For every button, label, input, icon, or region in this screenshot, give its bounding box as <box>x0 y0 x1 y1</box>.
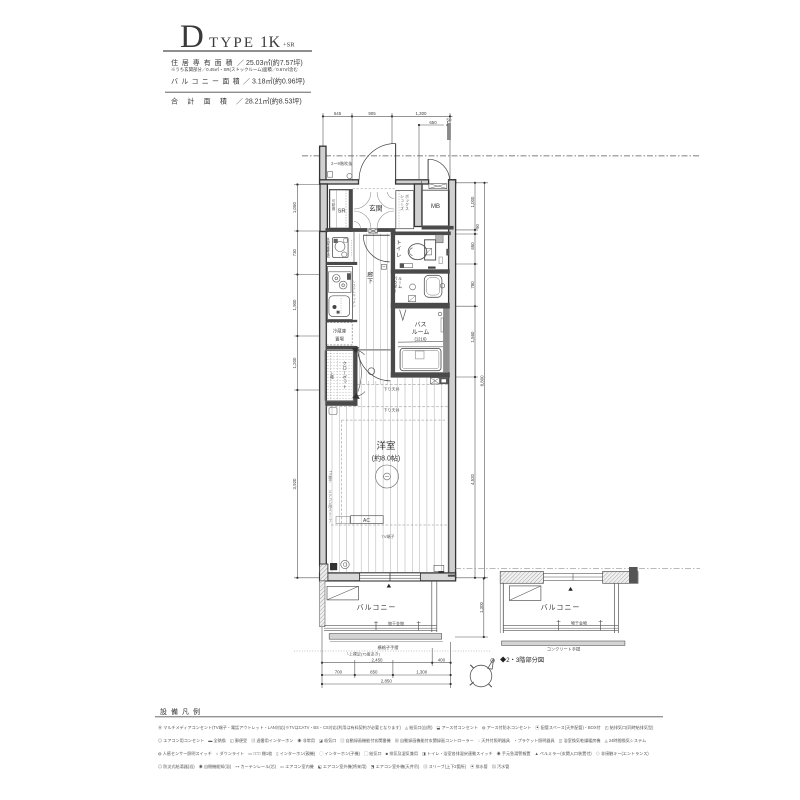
svg-text:洗濯機置場: 洗濯機置場 <box>326 237 331 259</box>
svg-text:TV端子: TV端子 <box>381 533 394 539</box>
svg-text:+SR: +SR <box>283 42 295 49</box>
svg-text:(約8.0帖): (約8.0帖) <box>372 454 400 463</box>
svg-text:730: 730 <box>292 248 297 256</box>
svg-text:8,800: 8,800 <box>480 375 485 387</box>
svg-text:650: 650 <box>429 120 437 125</box>
svg-text:MB: MB <box>431 204 440 210</box>
svg-text:1,000: 1,000 <box>470 196 475 208</box>
svg-text:4,520: 4,520 <box>470 473 475 485</box>
svg-text:トイレ: トイレ <box>395 240 402 259</box>
svg-text:780: 780 <box>470 281 475 289</box>
svg-text:玄関: 玄関 <box>369 204 383 213</box>
svg-text:冷蔵庫: 冷蔵庫 <box>333 328 347 335</box>
svg-text:3,920: 3,920 <box>292 478 297 490</box>
svg-text:ルーム: ルーム <box>412 329 430 336</box>
svg-text:400: 400 <box>438 657 446 662</box>
svg-text:1,200: 1,200 <box>292 357 297 369</box>
svg-text:1K: 1K <box>260 34 281 51</box>
svg-text:下り天井: 下り天井 <box>384 407 400 413</box>
svg-text:850: 850 <box>370 670 378 675</box>
svg-text:ルーム: ルーム <box>398 276 403 289</box>
svg-text:住居専有面積: 住居専有面積 <box>171 58 236 67</box>
svg-text:エアコン用スリーブ: エアコン用スリーブ <box>327 490 332 523</box>
svg-text:(1216): (1216) <box>414 337 427 342</box>
svg-text:1,300: 1,300 <box>416 670 428 675</box>
svg-text:2,450: 2,450 <box>372 657 384 662</box>
svg-text:合計面積: 合計面積 <box>171 97 236 106</box>
svg-text:物干金物: 物干金物 <box>571 619 587 625</box>
svg-text:700: 700 <box>335 670 343 675</box>
svg-text:物干金物: 物干金物 <box>388 620 404 626</box>
svg-text:クローゼット: クローゼット <box>342 361 348 389</box>
svg-text:廊下: 廊下 <box>366 271 373 285</box>
svg-text:上棚: 上棚 <box>329 371 333 379</box>
svg-text:／ 25.03㎡(約7.57坪): ／ 25.03㎡(約7.57坪) <box>237 58 303 67</box>
svg-text:横格子手摺: 横格子手摺 <box>378 644 399 651</box>
svg-text:／ 28.21㎡(約8.53坪): ／ 28.21㎡(約8.53坪) <box>236 97 302 106</box>
svg-text:SR: SR <box>337 209 345 215</box>
svg-text:可動棚: 可動棚 <box>331 198 336 211</box>
svg-text:TYPE: TYPE <box>209 35 255 51</box>
svg-text:システムキッチン: システムキッチン <box>351 280 355 307</box>
svg-text:645: 645 <box>334 111 342 116</box>
svg-text:バス: バス <box>414 322 426 329</box>
svg-text:90: 90 <box>475 224 480 229</box>
svg-text:コンクリート手摺: コンクリート手摺 <box>547 646 581 653</box>
svg-text:◍ 人感センサー照明スイッチ ○ ダウンライト ▭ □□□: ◍ 人感センサー照明スイッチ ○ ダウンライト ▭ □□□ 棚1枚 ▯ インター… <box>158 750 649 756</box>
svg-text:◆2・3階部分図: ◆2・3階部分図 <box>500 656 544 664</box>
svg-text:Ⓜ マルチメディアコンセント(TV端子・電話アウトレット・L: Ⓜ マルチメディアコンセント(TV端子・電話アウトレット・LAN対応)※TVはC… <box>158 724 654 730</box>
svg-text:／ 3.18㎡(約0.96坪): ／ 3.18㎡(約0.96坪) <box>243 77 305 86</box>
svg-text:バルコニー: バルコニー <box>357 604 397 612</box>
svg-text:置場: 置場 <box>335 336 344 343</box>
svg-text:◎ 防災式給湯器(浴) ◉ 自閉機能知(浴) ⊶ カーテンレ: ◎ 防災式給湯器(浴) ◉ 自閉機能知(浴) ⊶ カーテンレール(芯) ▭ エア… <box>158 763 509 769</box>
svg-text:1,560: 1,560 <box>470 331 475 343</box>
svg-text:2〜9階吹抜: 2〜9階吹抜 <box>331 160 353 167</box>
svg-text:AC: AC <box>363 518 370 524</box>
svg-text:下り天井: 下り天井 <box>384 385 400 391</box>
svg-text:バルコニー面積: バルコニー面積 <box>171 77 243 86</box>
svg-text:2,850: 2,850 <box>381 679 393 684</box>
svg-text:洋室: 洋室 <box>376 440 395 452</box>
svg-text:1,050: 1,050 <box>292 202 297 214</box>
svg-text:650: 650 <box>470 242 475 250</box>
svg-text:ボックス: ボックス <box>405 193 410 211</box>
svg-text:1,900: 1,900 <box>292 299 297 311</box>
svg-text:50: 50 <box>447 118 452 123</box>
svg-text:◎ エアコン用コンセント ▬ 全熱換 ◱ 郵便受 ▥ 週番用: ◎ エアコン用コンセント ▬ 全熱換 ◱ 郵便受 ▥ 週番用インターホン ◉ 非… <box>158 737 646 743</box>
svg-text:設備凡例: 設備凡例 <box>160 707 204 716</box>
svg-text:D: D <box>180 19 204 55</box>
svg-text:1,300: 1,300 <box>479 601 484 613</box>
svg-text:1,300: 1,300 <box>416 111 428 116</box>
svg-text:└上裸足(75度あき): └上裸足(75度あき) <box>346 651 381 657</box>
svg-text:バルコニー: バルコニー <box>541 604 581 612</box>
svg-text:905: 905 <box>368 111 376 116</box>
svg-text:※うち玄関部分／0.45㎡・SR(ストックルーム)面積／0.: ※うち玄関部分／0.45㎡・SR(ストックルーム)面積／0.67㎡含む <box>171 66 298 73</box>
svg-text:TV端子: TV端子 <box>327 471 332 483</box>
